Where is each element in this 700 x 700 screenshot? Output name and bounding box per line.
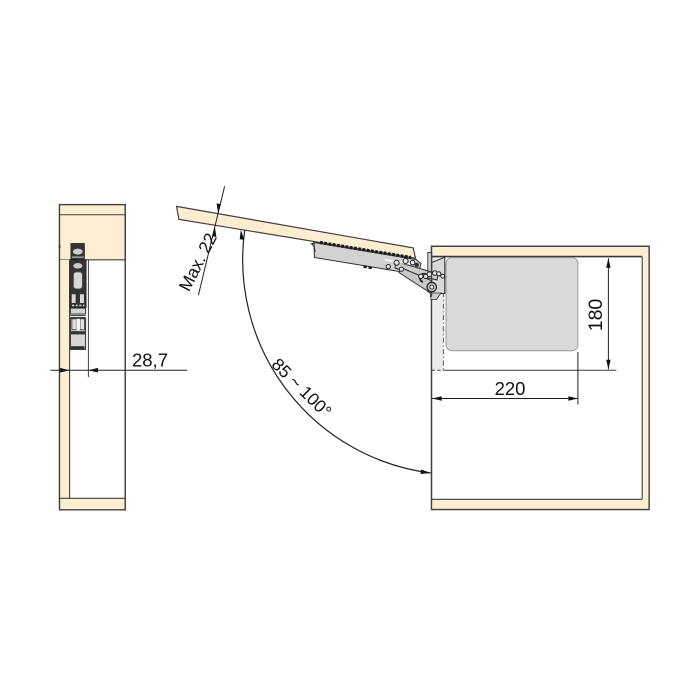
svg-text:Max. 22: Max. 22 — [175, 230, 221, 295]
svg-text:28,7: 28,7 — [132, 349, 168, 370]
svg-text:220: 220 — [495, 378, 526, 399]
svg-text:85 ~ 100°: 85 ~ 100° — [268, 354, 336, 421]
svg-text:180: 180 — [585, 299, 607, 332]
